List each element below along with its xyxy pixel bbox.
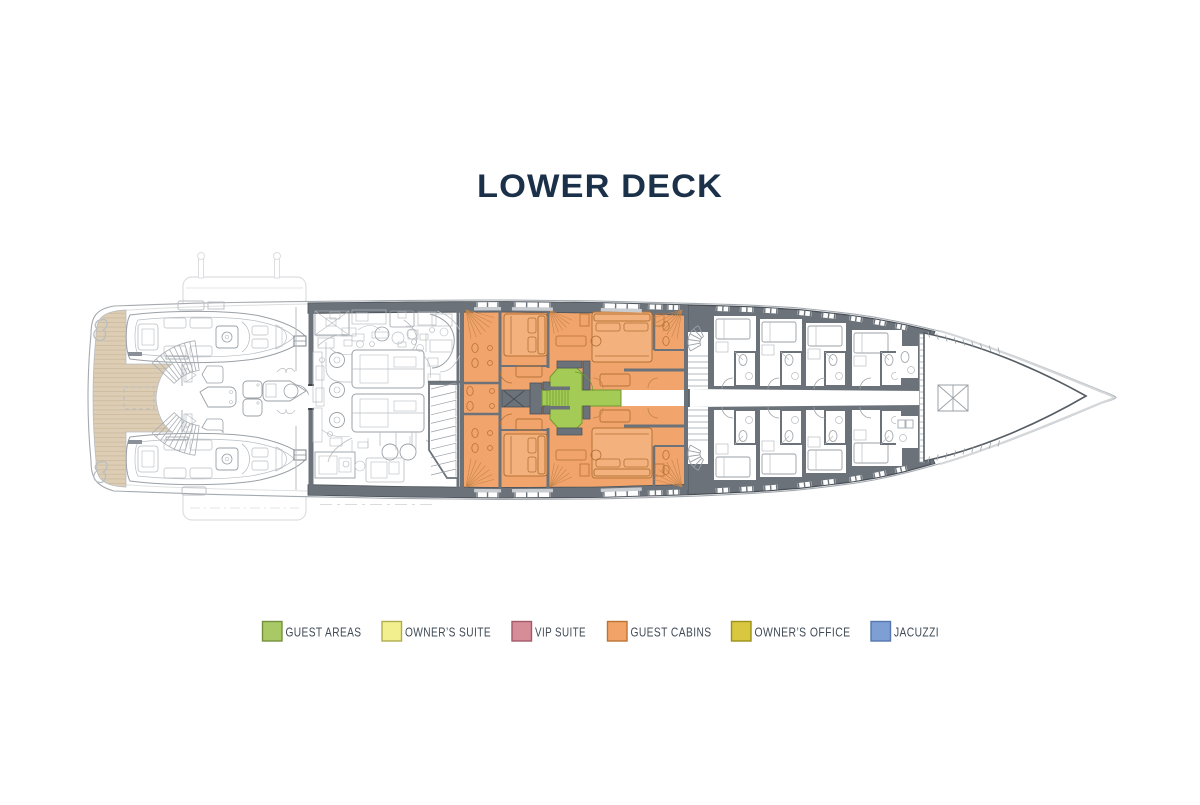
svg-text:GUEST CABINS: GUEST CABINS [631,626,712,640]
svg-text:JACUZZI: JACUZZI [894,626,939,640]
svg-text:OWNER’S SUITE: OWNER’S SUITE [405,626,491,640]
svg-text:VIP SUITE: VIP SUITE [535,626,586,640]
svg-text:LOWER DECK: LOWER DECK [477,168,723,204]
svg-text:OWNER’S OFFICE: OWNER’S OFFICE [755,626,851,640]
svg-text:GUEST AREAS: GUEST AREAS [286,626,362,640]
